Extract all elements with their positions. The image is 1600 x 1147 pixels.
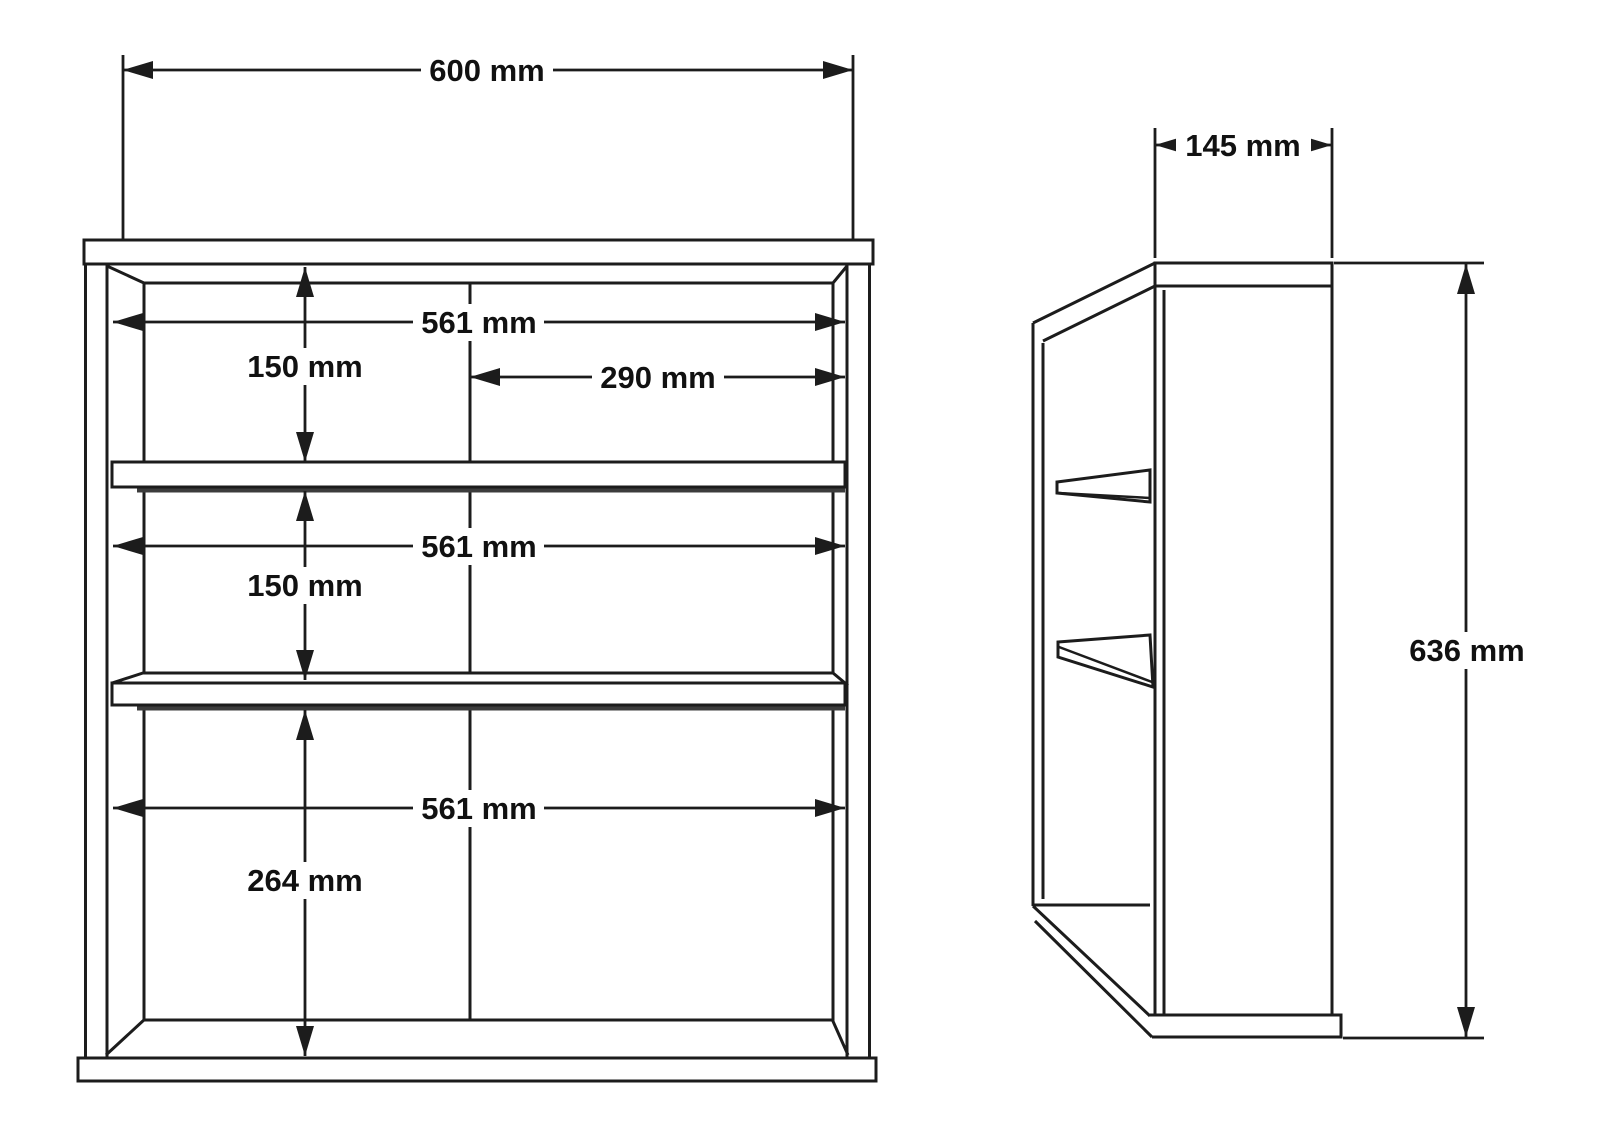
dim-636-label: 636 mm: [1409, 633, 1524, 668]
arrowhead-right: [815, 313, 845, 331]
arrowhead-down: [296, 432, 314, 462]
arrowhead-up: [296, 710, 314, 740]
front-view: 600 mm 561 mm 290 mm 150 mm: [78, 52, 876, 1081]
side-carcass: [1033, 263, 1341, 1037]
side-shelf-2-wedge: [1058, 635, 1153, 687]
interior-bottom-diagonals: [106, 1019, 848, 1055]
dim-150b-label: 150 mm: [247, 568, 362, 603]
dim-561a-label: 561 mm: [421, 305, 536, 340]
dim-561b-label: 561 mm: [421, 529, 536, 564]
dim-inner-width-bottom: 561 mm: [113, 790, 845, 827]
arrowhead-down: [1457, 1007, 1475, 1037]
side-shelf-2: [1058, 635, 1153, 687]
arrowhead-left: [113, 537, 143, 555]
technical-drawing: 600 mm 561 mm 290 mm 150 mm: [0, 0, 1600, 1147]
dim-bottom-section-height: 264 mm: [237, 710, 373, 1056]
dim-height: 636 mm: [1334, 263, 1538, 1038]
side-panel-edges: [86, 264, 870, 1058]
arrowhead-right: [815, 799, 845, 817]
bottom-panel-perspective: [1033, 906, 1152, 1037]
dim-inner-width-middle: 561 mm: [113, 528, 845, 565]
arrowhead-left: [123, 61, 153, 79]
arrowhead-up: [296, 491, 314, 521]
side-panel-top-face: [1155, 263, 1332, 286]
dim-depth: 145 mm: [1155, 127, 1332, 258]
dim-600-label: 600 mm: [429, 53, 544, 88]
dim-inner-width-top: 561 mm: [113, 304, 845, 341]
arrowhead-right: [823, 61, 853, 79]
interior-top-edges: [107, 266, 847, 283]
arrowhead-up: [1457, 264, 1475, 294]
arrowhead-right: [815, 537, 845, 555]
front-shelf-2: [112, 673, 845, 709]
base-plinth: [78, 1058, 876, 1081]
side-panel-face: [1155, 286, 1332, 1015]
front-interior-outline: [106, 266, 848, 1055]
interior-back-panel: [144, 283, 833, 1020]
side-shelf-1: [1057, 470, 1150, 502]
arrowhead-left: [470, 368, 500, 386]
dim-right-half-width: 290 mm: [470, 359, 845, 396]
top-panel-perspective: [1033, 263, 1155, 341]
dim-145-label: 145 mm: [1185, 128, 1300, 163]
side-view: 145 mm 636 mm: [1033, 127, 1538, 1038]
shelf-1-front: [112, 462, 845, 487]
top-panel: [84, 240, 873, 264]
drawing-page: 600 mm 561 mm 290 mm 150 mm: [0, 0, 1600, 1147]
back-panel-band: [1033, 323, 1150, 906]
dim-top-section-height: 150 mm: [237, 267, 373, 462]
arrowhead-left: [113, 313, 143, 331]
shelf-2-front: [112, 683, 845, 705]
side-panel-bottom-band: [1150, 1015, 1341, 1037]
front-shelf-1: [112, 462, 845, 491]
arrowhead-right: [815, 368, 845, 386]
arrowhead-left: [113, 799, 143, 817]
dim-290-label: 290 mm: [600, 360, 715, 395]
dim-561c-label: 561 mm: [421, 791, 536, 826]
arrowhead-down: [296, 1026, 314, 1056]
dim-150a-label: 150 mm: [247, 349, 362, 384]
dim-overall-width: 600 mm: [123, 52, 853, 240]
dim-264-label: 264 mm: [247, 863, 362, 898]
front-carcass: [78, 240, 876, 1081]
dim-middle-section-height: 150 mm: [237, 491, 373, 680]
